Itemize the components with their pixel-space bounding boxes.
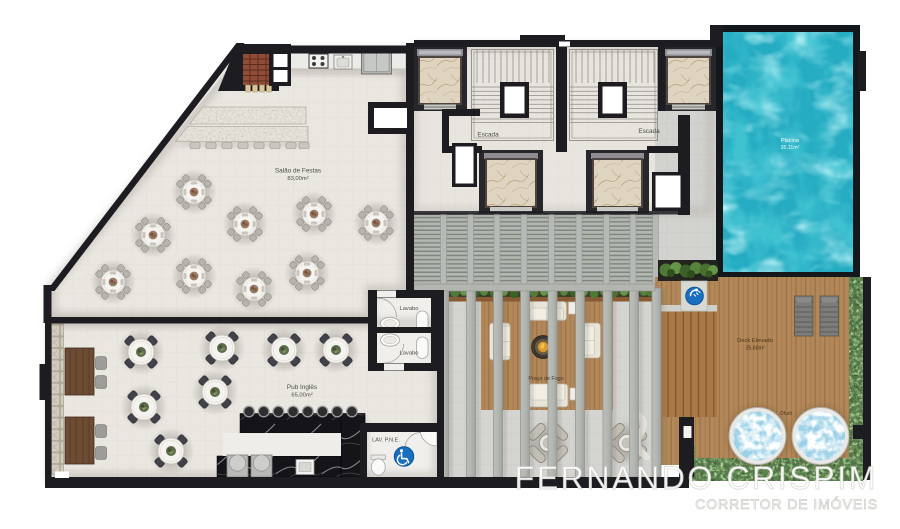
svg-text:CORRETOR DE IMÓVEIS: CORRETOR DE IMÓVEIS [695, 496, 878, 513]
svg-text:Salão de Festas: Salão de Festas [275, 168, 321, 175]
svg-text:FERNANDO CRISPIM: FERNANDO CRISPIM [515, 460, 878, 496]
svg-text:Piscina: Piscina [781, 138, 800, 144]
svg-text:LAV. P.N.E.: LAV. P.N.E. [372, 438, 400, 444]
svg-text:Ofurô: Ofurô [780, 411, 793, 417]
svg-text:83,00m²: 83,00m² [287, 176, 308, 182]
svg-text:Lavabo: Lavabo [399, 351, 418, 357]
svg-text:35,11m²: 35,11m² [781, 145, 800, 151]
svg-text:Escada: Escada [477, 132, 499, 139]
svg-text:Deck Elevado: Deck Elevado [737, 338, 773, 344]
svg-text:Escada: Escada [638, 128, 660, 135]
svg-text:25,60m²: 25,60m² [745, 346, 764, 352]
svg-text:Lavabo: Lavabo [399, 306, 418, 312]
svg-text:Praça de Fogo: Praça de Fogo [528, 376, 563, 382]
svg-text:Pub Inglês: Pub Inglês [287, 384, 317, 391]
svg-text:65,00m²: 65,00m² [291, 393, 312, 399]
